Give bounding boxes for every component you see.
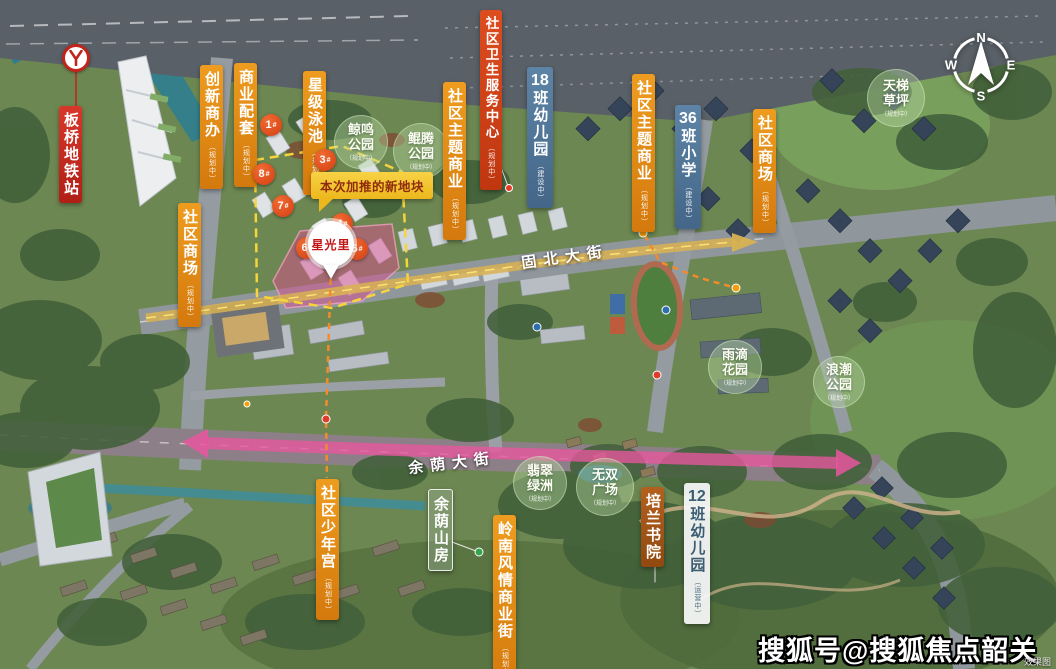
banner-banqiao-metro-station: 板桥地铁站 [59, 106, 82, 203]
metro-logo-icon [62, 44, 90, 72]
park-label-tianti: 天梯草坪 （规划中） [867, 69, 925, 127]
watermark: 搜狐号@搜狐焦点韶关站 [758, 629, 1056, 669]
park-label-kunteng: 鲲腾公园 （规划中） [393, 123, 449, 179]
banner-yuyin-garden: 余荫山房 [428, 489, 453, 571]
banner-status: （建设中） [535, 162, 545, 202]
banner-status: （运营中） [692, 578, 702, 618]
banner-label: 培兰书院 [645, 493, 660, 561]
banner-kindergarten-12: 12 班幼儿园 （运营中） [684, 483, 710, 624]
banner-label: 社区卫生服务中心 [484, 16, 498, 140]
banner-status: （规划中） [500, 644, 510, 669]
banner-label: 社区商场 [757, 115, 772, 183]
banner-theme-commerce-west: 社区主题商业 （规划中） [443, 82, 466, 240]
banner-label: 班幼儿园 [689, 506, 704, 574]
building-badge-1: 1# [260, 114, 282, 136]
park-label-langchao: 浪潮公园 （规划中） [813, 356, 865, 408]
banner-status: （规划中） [450, 194, 460, 234]
banner-status: （规划中） [207, 143, 217, 183]
project-pin: 星光里 [308, 221, 354, 279]
building-badge-7: 7# [272, 195, 294, 217]
compass-e: E [1007, 58, 1016, 73]
building-badge-3: 3# [314, 149, 336, 171]
banner-label: 社区少年宫 [320, 485, 335, 570]
masterplan-map: 板桥地铁站 社区商场 （规划中） 创新商办 （规划中） 商业配套 （规划中） 星… [0, 0, 1056, 669]
banner-status: （规划中） [486, 144, 496, 184]
compass-n: N [976, 30, 985, 45]
banner-status: （规划中） [185, 281, 195, 321]
banner-label: 班小学 [680, 128, 695, 179]
banner-innovation-office: 创新商办 （规划中） [200, 65, 223, 189]
banner-number: 12 [688, 489, 706, 506]
banner-theme-commerce-east: 社区主题商业 （规划中） [632, 74, 655, 232]
park-label-jingming: 鲸鸣公园 （规划中） [334, 115, 388, 169]
park-label-wushuang: 无双广场 （规划中） [576, 458, 634, 516]
banner-status: （建设中） [683, 183, 693, 223]
compass-rose-icon: N E S W [942, 26, 1020, 108]
banner-community-mall-west: 社区商场 （规划中） [178, 203, 201, 327]
banner-label: 社区商场 [182, 209, 197, 277]
banner-label: 创新商办 [204, 71, 219, 139]
banner-community-mall-east: 社区商场 （规划中） [753, 109, 776, 233]
banner-label: 商业配套 [238, 69, 253, 137]
park-label-yudi: 雨滴花园 （规划中） [708, 340, 762, 394]
banner-status: （规划中） [323, 574, 333, 614]
building-badge-8: 8# [253, 163, 275, 185]
banner-label: 社区主题商业 [636, 80, 651, 182]
render-note: 效果图 [1024, 655, 1051, 668]
banner-youth-palace: 社区少年宫 （规划中） [316, 479, 339, 620]
banner-primary-school-36: 36 班小学 （建设中） [675, 105, 701, 229]
banner-status: （规划中） [639, 186, 649, 226]
banner-status: （规划中） [241, 141, 251, 181]
banner-number: 18 [531, 73, 549, 90]
compass-north-arrow [968, 41, 994, 85]
project-pin-tail [323, 265, 339, 279]
banner-status: （规划中） [760, 187, 770, 227]
banner-label: 社区主题商业 [447, 88, 462, 190]
banner-peilan-academy: 培兰书院 [641, 487, 664, 567]
banner-lingnan-street: 岭南风情商业街 （规划中） [493, 515, 516, 669]
project-pin-circle: 星光里 [308, 221, 354, 267]
banner-label: 星级泳池 [307, 77, 322, 145]
banner-label: 余荫山房 [433, 496, 448, 564]
banner-label: 板桥地铁站 [63, 112, 78, 197]
compass-s: S [977, 89, 986, 104]
park-label-feicui: 翡翠绿洲 （规划中） [513, 456, 567, 510]
banner-health-center: 社区卫生服务中心 （规划中） [480, 10, 502, 190]
banner-label: 岭南风情商业街 [497, 521, 512, 640]
banner-number: 36 [679, 111, 697, 128]
new-plot-callout: 本次加推的新地块 [311, 172, 433, 199]
compass-w: W [945, 58, 958, 73]
banner-kindergarten-18: 18 班幼儿园 （建设中） [527, 67, 553, 208]
banner-label: 班幼儿园 [532, 90, 547, 158]
project-name: 星光里 [311, 236, 350, 253]
